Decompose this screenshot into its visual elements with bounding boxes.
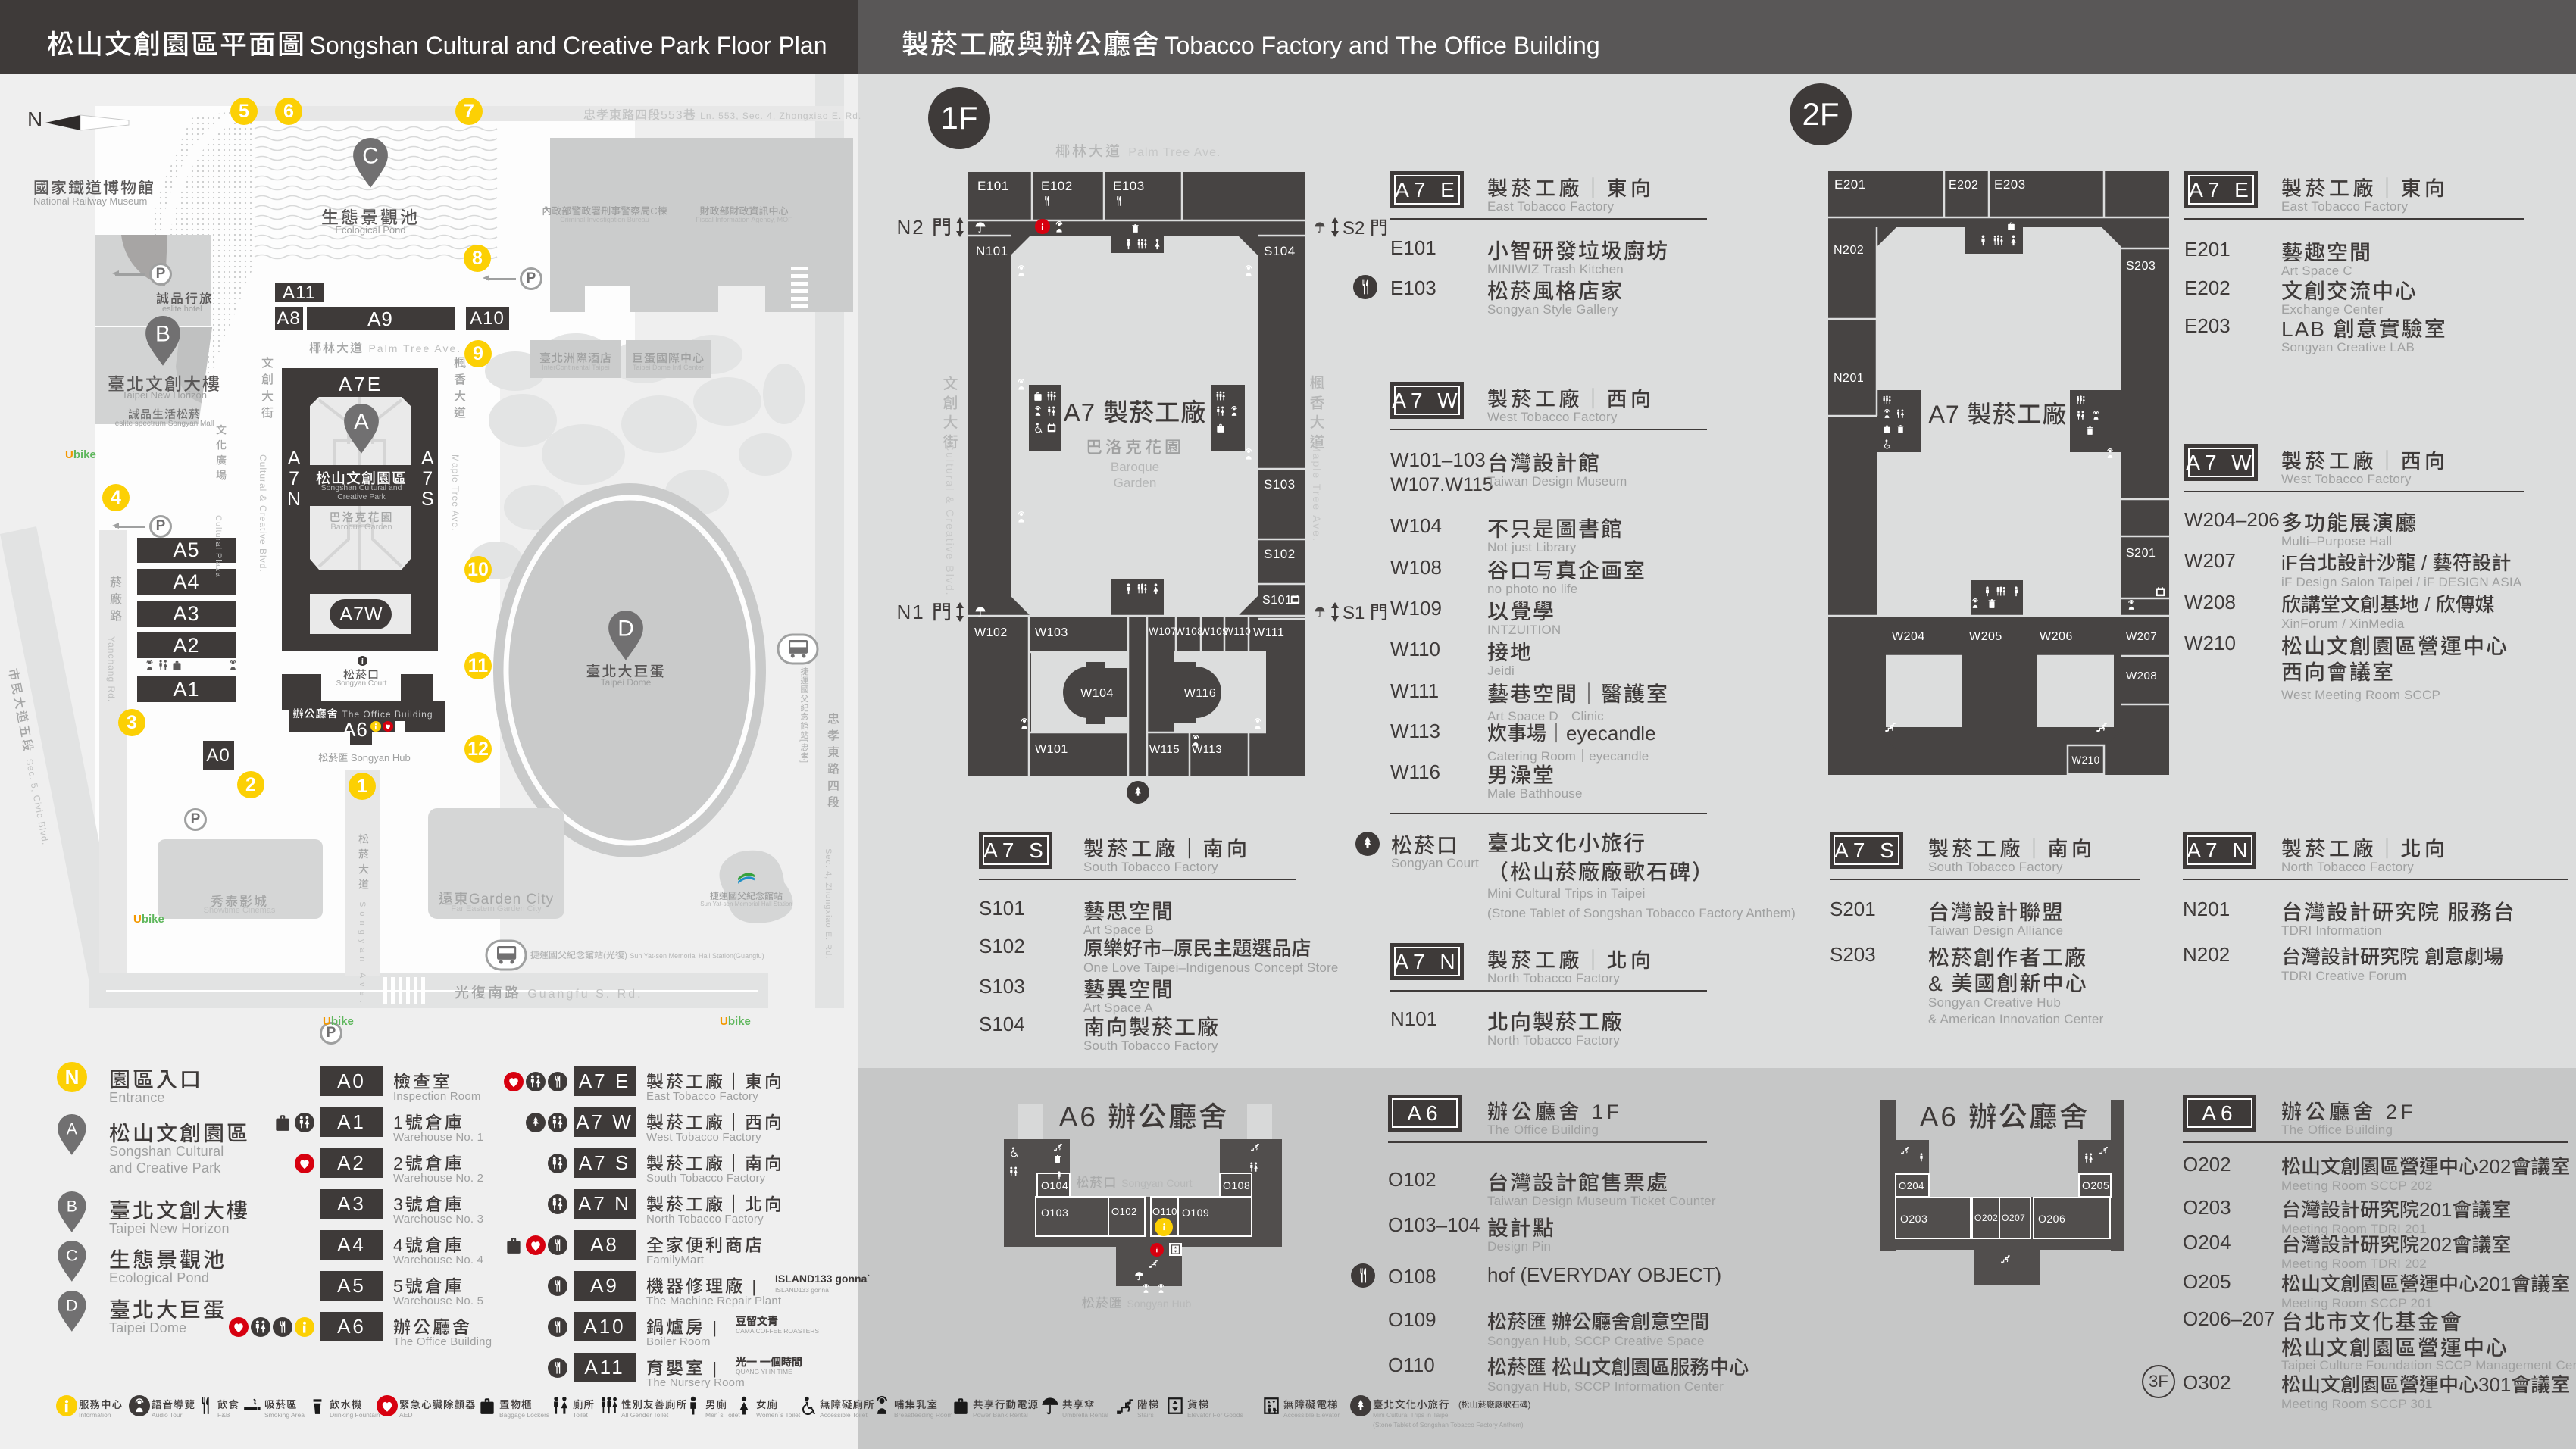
svg-text:W107: W107	[1149, 626, 1177, 637]
svg-text:E103: E103	[1113, 179, 1145, 193]
svg-text:S2 門: S2 門	[1343, 218, 1388, 239]
svg-text:Maple Tree Ave.: Maple Tree Ave.	[1311, 443, 1323, 542]
svg-text:楓香大道: 楓香大道	[1307, 375, 1324, 454]
svg-text:D: D	[66, 1298, 77, 1315]
svg-text:C: C	[66, 1248, 77, 1265]
svg-text:O103: O103	[1041, 1207, 1068, 1219]
svg-text:O108: O108	[1223, 1179, 1250, 1191]
svg-text:O104: O104	[1041, 1179, 1068, 1191]
svg-text:N1 門: N1 門	[897, 601, 953, 623]
svg-text:A7 製菸工廠: A7 製菸工廠	[1064, 398, 1207, 426]
svg-text:松菸匯 Songyan Hub: 松菸匯 Songyan Hub	[1082, 1296, 1192, 1310]
svg-text:N101: N101	[976, 244, 1008, 258]
svg-text:B: B	[67, 1198, 77, 1216]
svg-text:Cultural & Creative Blvd.: Cultural & Creative Blvd.	[944, 443, 956, 597]
svg-text:巴洛克花園: 巴洛克花園	[1086, 438, 1184, 457]
svg-text:B: B	[155, 322, 170, 347]
svg-text:W102: W102	[974, 626, 1008, 639]
svg-text:N202: N202	[1834, 244, 1864, 257]
svg-text:椰林大道 Palm Tree Ave.: 椰林大道 Palm Tree Ave.	[1055, 143, 1221, 160]
svg-text:N201: N201	[1834, 372, 1864, 385]
svg-text:W104: W104	[1080, 687, 1114, 700]
svg-text:A: A	[67, 1121, 78, 1138]
svg-text:Baroque: Baroque	[1111, 460, 1159, 474]
svg-text:S203: S203	[2126, 260, 2156, 273]
svg-text:E203: E203	[1994, 177, 2026, 192]
svg-text:C: C	[362, 144, 379, 169]
svg-text:W115: W115	[1149, 743, 1180, 756]
svg-text:W111: W111	[1253, 626, 1284, 639]
svg-text:A6 辦公廳舍: A6 辦公廳舍	[1920, 1101, 2090, 1132]
svg-text:E201: E201	[1834, 177, 1866, 192]
svg-text:W206: W206	[2040, 630, 2073, 643]
svg-text:S1 門: S1 門	[1343, 603, 1388, 623]
svg-text:S101: S101	[1262, 594, 1292, 607]
svg-text:Garden: Garden	[1114, 476, 1157, 490]
svg-text:文創大街: 文創大街	[940, 375, 958, 454]
svg-text:D: D	[617, 617, 634, 642]
svg-text:W204: W204	[1892, 630, 1925, 643]
svg-text:W108: W108	[1175, 626, 1203, 637]
svg-text:O102: O102	[1111, 1206, 1137, 1217]
svg-text:A7 製菸工廠: A7 製菸工廠	[1928, 401, 2067, 428]
svg-text:O206: O206	[2038, 1213, 2065, 1225]
svg-text:E102: E102	[1041, 179, 1073, 193]
svg-text:O109: O109	[1182, 1207, 1209, 1219]
svg-text:W110: W110	[1224, 626, 1251, 637]
svg-text:W208: W208	[2126, 670, 2157, 682]
svg-text:O110: O110	[1152, 1206, 1177, 1217]
svg-text:O204: O204	[1899, 1180, 1924, 1191]
svg-text:W116: W116	[1184, 687, 1217, 700]
svg-text:A: A	[354, 410, 369, 435]
svg-text:S201: S201	[2126, 547, 2156, 560]
svg-text:W210: W210	[2071, 754, 2099, 766]
svg-text:O207: O207	[2002, 1213, 2025, 1223]
svg-text:E101: E101	[977, 179, 1009, 193]
svg-text:W101: W101	[1035, 743, 1068, 756]
svg-text:O205: O205	[2082, 1179, 2109, 1191]
svg-text:N2 門: N2 門	[897, 216, 953, 239]
svg-text:W207: W207	[2126, 630, 2157, 643]
svg-text:O203: O203	[1900, 1213, 1927, 1225]
svg-text:松菸口 Songyan Court: 松菸口 Songyan Court	[1076, 1176, 1192, 1190]
svg-text:O202: O202	[1974, 1213, 1998, 1223]
svg-text:S102: S102	[1264, 547, 1296, 561]
svg-text:E202: E202	[1949, 179, 1978, 192]
svg-text:A6 辦公廳舍: A6 辦公廳舍	[1059, 1101, 1230, 1132]
svg-text:W205: W205	[1969, 630, 2002, 643]
svg-text:W103: W103	[1035, 626, 1068, 639]
svg-text:S103: S103	[1264, 477, 1296, 492]
svg-text:S104: S104	[1264, 244, 1296, 258]
